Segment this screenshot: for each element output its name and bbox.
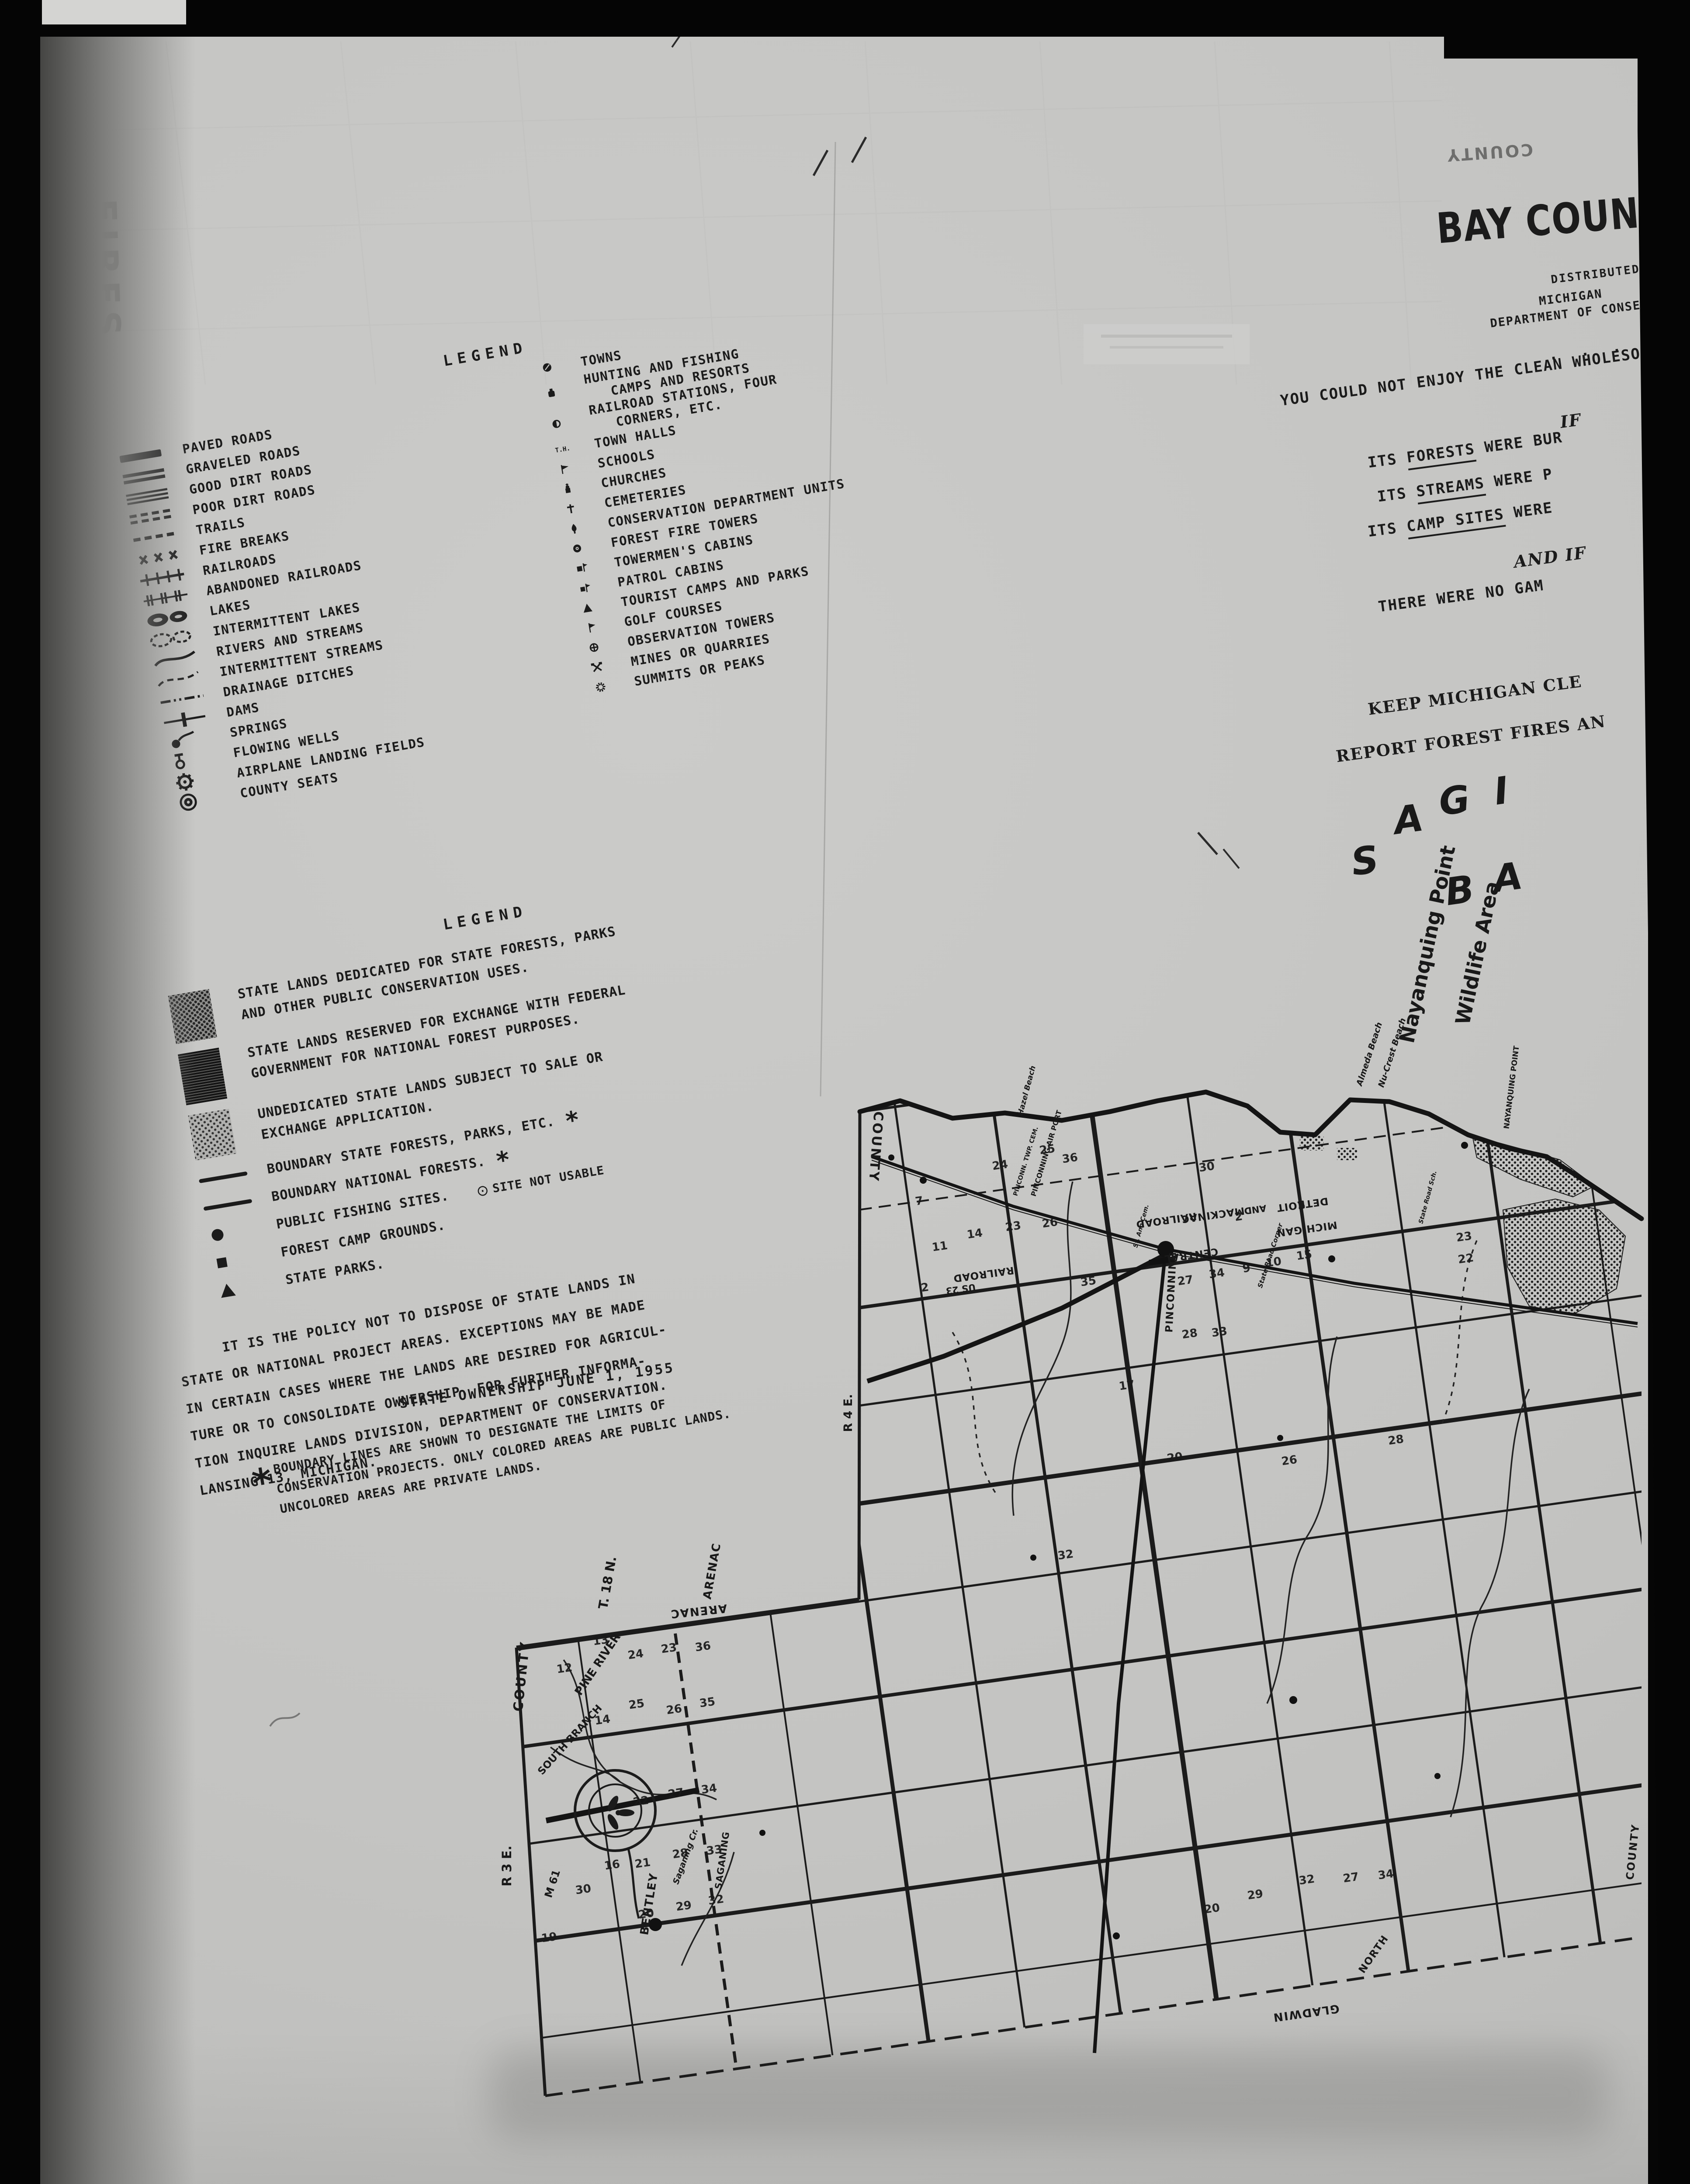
microfilm-map-page: COUNTYFIRESBAY — [0, 0, 1690, 2184]
film-top-light-sliver — [42, 0, 186, 24]
film-edge-right — [0, 0, 1690, 2184]
